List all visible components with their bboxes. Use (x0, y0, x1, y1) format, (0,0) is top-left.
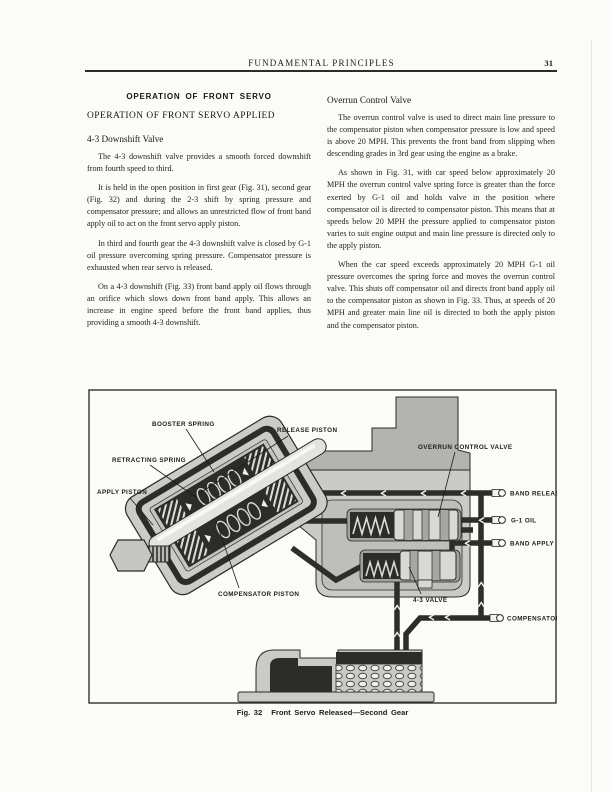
figure-label-compensator-piston: COMPENSATOR PISTON (218, 591, 299, 598)
right-heading: Overrun Control Valve (327, 95, 555, 105)
figure-label-band-apply: BAND APPLY (510, 541, 555, 548)
left-column: OPERATION OF FRONT SERVO OPERATION OF FR… (87, 92, 311, 329)
left-heading: 4-3 Downshift Valve (87, 134, 311, 144)
left-paragraph-4: On a 4-3 downshift (Fig. 33) front band … (87, 281, 311, 329)
left-paragraph-2: It is held in the open position in first… (87, 182, 311, 230)
figure-label-apply-piston: APPLY PISTON (97, 489, 147, 496)
manual-page: FUNDAMENTAL PRINCIPLES 31 OPERATION OF F… (0, 0, 612, 792)
page-number: 31 (85, 58, 553, 68)
figure-label-band-release: BAND RELEASE (510, 491, 557, 498)
right-paragraph-1: The overrun control valve is used to dir… (327, 112, 555, 160)
figure-label-overrun-control-valve: OVERRUN CONTROL VALVE (418, 444, 512, 451)
figure-label-compensator: COMPENSATOR (507, 616, 557, 623)
figure-32: BOOSTER SPRING RELEASE PISTON RETRACTING… (88, 389, 557, 705)
left-paragraph-3: In third and fourth gear the 4-3 downshi… (87, 238, 311, 274)
header-rule (85, 70, 557, 72)
figure-label-four-three-valve: 4-3 VALVE (413, 597, 448, 604)
figure-label-retracting-spring: RETRACTING SPRING (112, 457, 186, 464)
right-column: Overrun Control Valve The overrun contro… (327, 92, 555, 332)
right-paragraph-2: As shown in Fig. 31, with car speed belo… (327, 167, 555, 252)
subsection-title: OPERATION OF FRONT SERVO APPLIED (87, 111, 311, 121)
figure-label-g1-oil: G-1 OIL (511, 518, 537, 525)
figure-caption: Fig. 32Front Servo Released—Second Gear (88, 708, 557, 717)
right-paragraph-3: When the car speed exceeds approximately… (327, 259, 555, 332)
compensator-assembly (238, 650, 434, 702)
figure-caption-number: Fig. 32 (237, 708, 263, 717)
section-title: OPERATION OF FRONT SERVO (87, 92, 311, 101)
overrun-control-valve (347, 509, 461, 541)
oil-ports (490, 490, 505, 622)
figure-32-diagram: BOOSTER SPRING RELEASE PISTON RETRACTING… (88, 389, 557, 705)
figure-caption-title: Front Servo Released—Second Gear (271, 708, 408, 717)
figure-label-release-piston: RELEASE PISTON (277, 427, 337, 434)
scan-edge-artifact (591, 40, 592, 792)
left-paragraph-1: The 4-3 downshift valve provides a smoot… (87, 151, 311, 175)
figure-label-booster-spring: BOOSTER SPRING (152, 421, 215, 428)
